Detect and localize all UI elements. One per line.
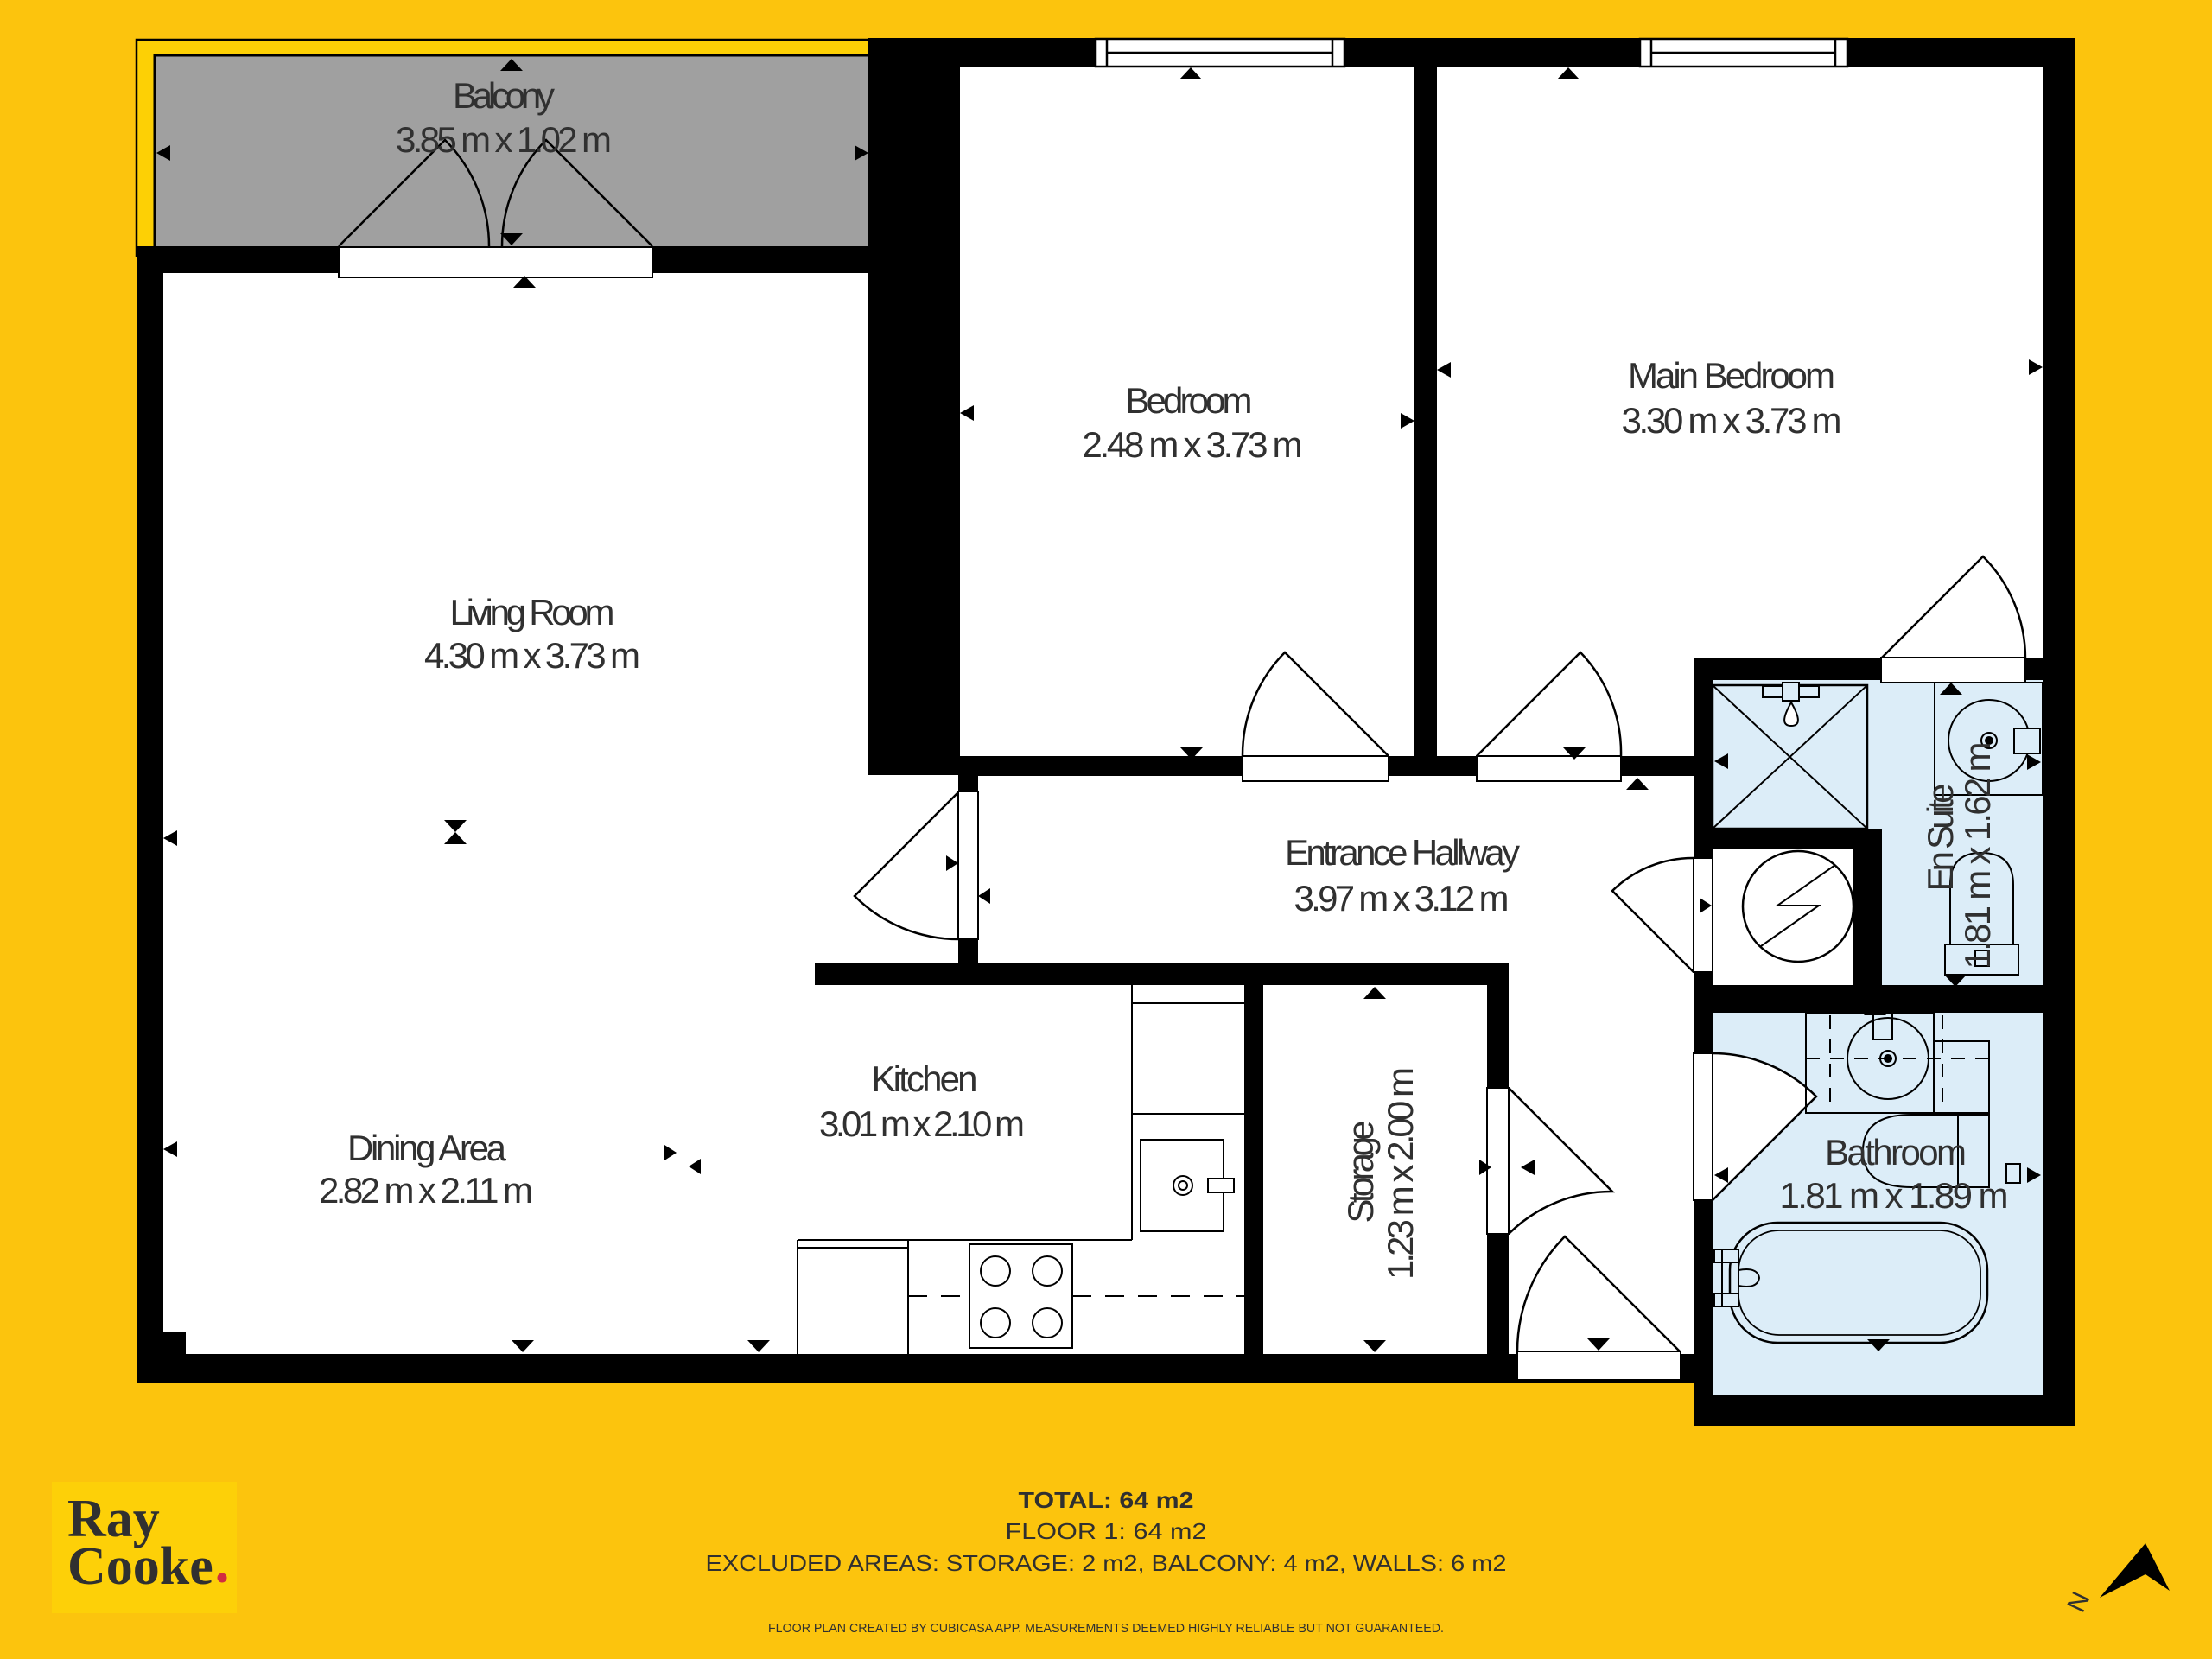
svg-text:Balcony: Balcony	[453, 75, 555, 116]
svg-text:Bedroom: Bedroom	[1126, 380, 1253, 421]
svg-text:3.97 m x 3.12 m: 3.97 m x 3.12 m	[1294, 878, 1510, 918]
svg-text:Dining Area: Dining Area	[347, 1128, 507, 1168]
svg-text:Main Bedroom: Main Bedroom	[1628, 355, 1835, 396]
svg-text:EXCLUDED AREAS: STORAGE: 2 m2,: EXCLUDED AREAS: STORAGE: 2 m2, BALCONY: …	[706, 1550, 1507, 1576]
svg-text:4.30 m x 3.73 m: 4.30 m x 3.73 m	[424, 635, 640, 676]
svg-text:2.82 m x 2.11 m: 2.82 m x 2.11 m	[319, 1170, 533, 1211]
svg-text:Living Room: Living Room	[450, 592, 615, 632]
svg-text:Bathroom: Bathroom	[1825, 1132, 1967, 1173]
svg-text:TOTAL: 64 m2: TOTAL: 64 m2	[1019, 1487, 1194, 1513]
svg-text:1.81 m x 1.62 m: 1.81 m x 1.62 m	[1957, 742, 1998, 969]
svg-text:1.23 m x 2.00 m: 1.23 m x 2.00 m	[1380, 1067, 1421, 1280]
svg-text:2.48 m x 3.73 m: 2.48 m x 3.73 m	[1083, 424, 1303, 465]
svg-text:Entrance Hallway: Entrance Hallway	[1285, 832, 1520, 873]
svg-text:Storage: Storage	[1340, 1121, 1381, 1224]
svg-text:En Suite: En Suite	[1920, 784, 1961, 892]
svg-text:FLOOR 1: 64 m2: FLOOR 1: 64 m2	[1006, 1518, 1207, 1544]
svg-text:Kitchen: Kitchen	[872, 1058, 978, 1099]
svg-text:3.30 m x 3.73 m: 3.30 m x 3.73 m	[1622, 400, 1842, 441]
svg-text:Cooke: Cooke	[67, 1537, 213, 1596]
svg-text:1.81 m x 1.89 m: 1.81 m x 1.89 m	[1780, 1175, 2009, 1216]
svg-text:FLOOR PLAN CREATED BY CUBICASA: FLOOR PLAN CREATED BY CUBICASA APP. MEAS…	[768, 1621, 1444, 1636]
svg-text:3.85 m x 1.02 m: 3.85 m x 1.02 m	[396, 119, 612, 160]
svg-text:3.01 m x 2.10 m: 3.01 m x 2.10 m	[819, 1103, 1025, 1144]
